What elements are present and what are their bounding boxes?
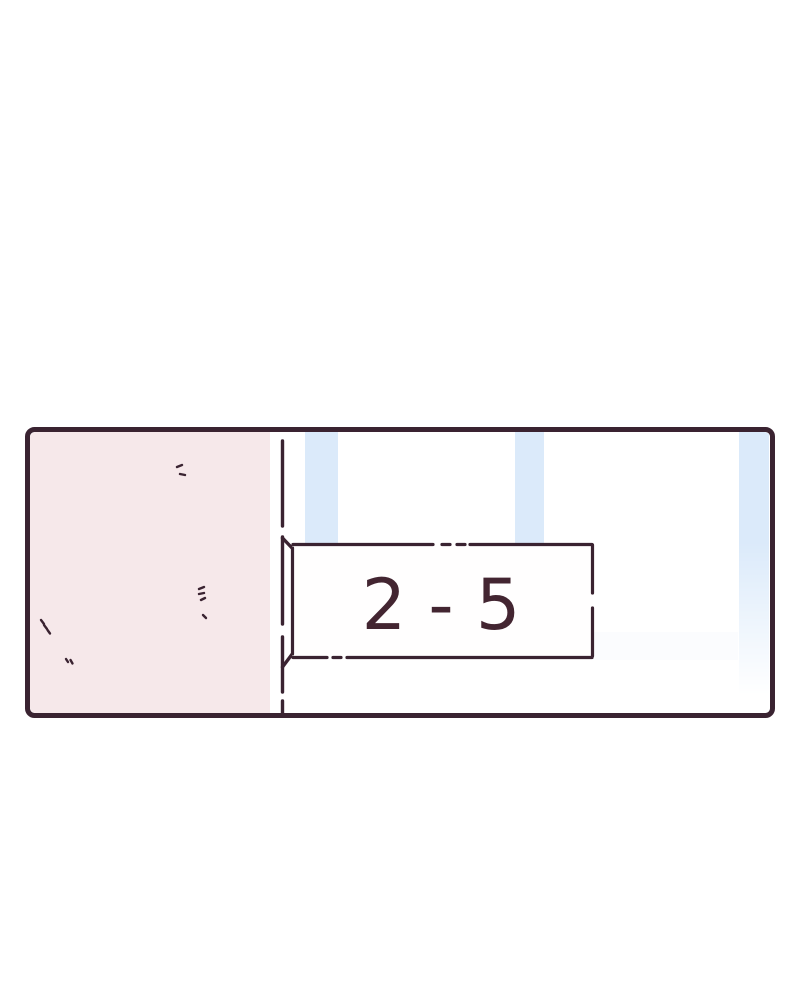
pink-wall bbox=[30, 432, 270, 713]
room-number-text: 2 - 5 bbox=[362, 564, 521, 646]
comic-page: 2 - 5 bbox=[0, 0, 800, 1000]
floor-tint bbox=[592, 632, 738, 660]
wall-stripe-3 bbox=[739, 432, 769, 698]
wall-stripe-1 bbox=[305, 432, 338, 544]
wall-stripe-2 bbox=[515, 432, 544, 544]
comic-panel: 2 - 5 bbox=[0, 0, 800, 1000]
